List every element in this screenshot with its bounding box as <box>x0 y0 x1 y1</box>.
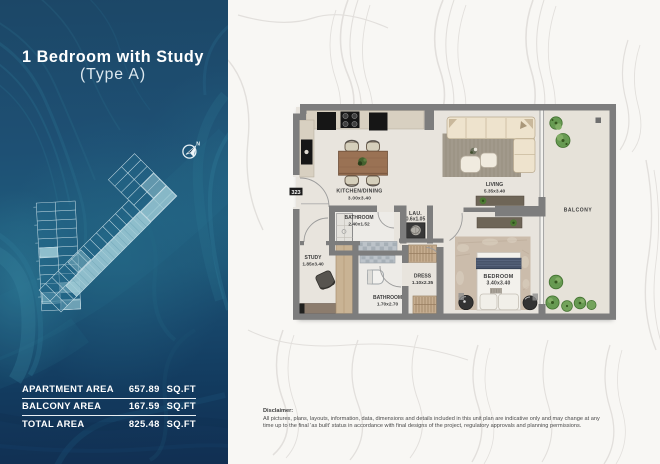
svg-text:LIVING: LIVING <box>486 182 503 188</box>
svg-text:BATHROOM: BATHROOM <box>344 215 373 221</box>
svg-text:BEDROOM: BEDROOM <box>484 274 514 280</box>
svg-text:1.85x3.40: 1.85x3.40 <box>302 262 324 268</box>
svg-text:3.40x3.40: 3.40x3.40 <box>486 280 510 286</box>
svg-text:2.40x1.52: 2.40x1.52 <box>348 222 370 228</box>
svg-text:STUDY: STUDY <box>305 255 323 261</box>
svg-text:1.10x2.35: 1.10x2.35 <box>412 280 434 286</box>
svg-text:1.70x2.70: 1.70x2.70 <box>377 302 399 308</box>
svg-text:0.6x1.05: 0.6x1.05 <box>406 217 426 223</box>
svg-text:3.00x3.40: 3.00x3.40 <box>348 196 371 202</box>
svg-text:KITCHEN/DINING: KITCHEN/DINING <box>336 189 382 195</box>
svg-text:323: 323 <box>291 190 300 196</box>
svg-text:5.35x3.40: 5.35x3.40 <box>484 189 506 195</box>
svg-text:BATHROOM: BATHROOM <box>373 295 402 301</box>
svg-text:DRESS: DRESS <box>414 274 432 280</box>
svg-text:BALCONY: BALCONY <box>564 208 593 214</box>
